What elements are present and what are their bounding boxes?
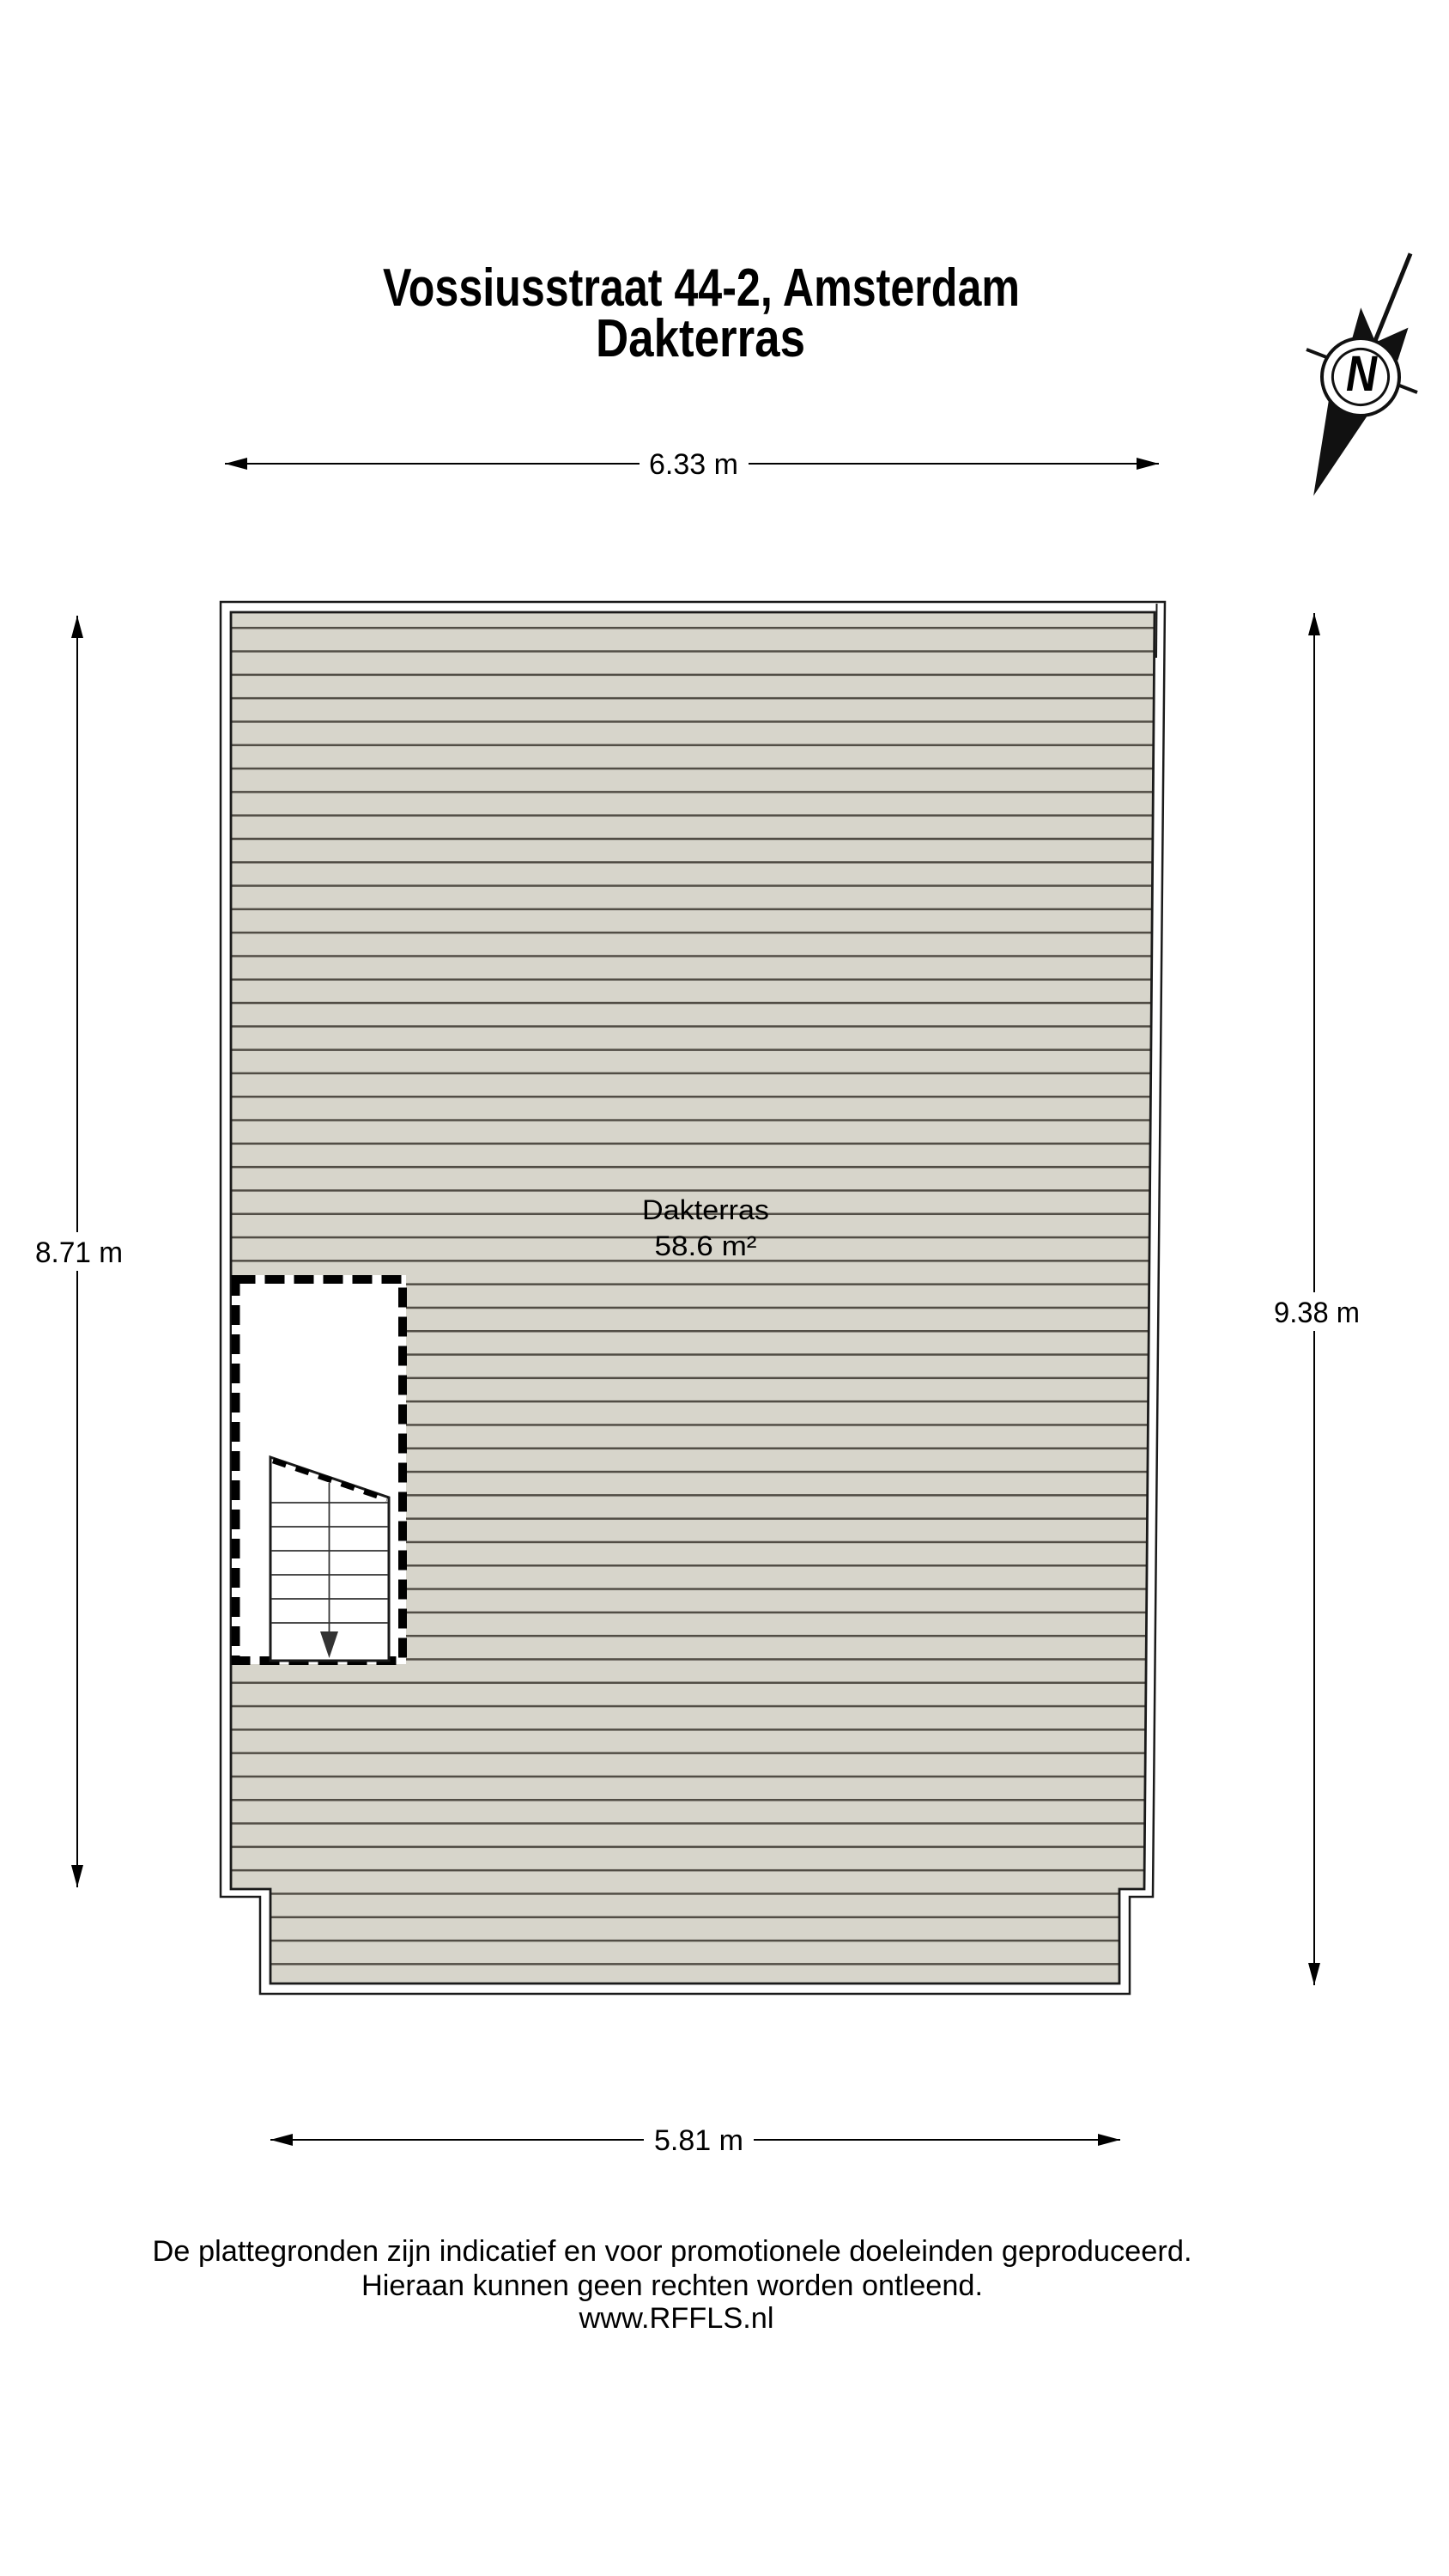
svg-text:6.33 m: 6.33 m: [649, 448, 738, 481]
svg-text:Hieraan kunnen geen rechten wo: Hieraan kunnen geen rechten worden ontle…: [361, 2269, 983, 2302]
svg-text:5.81 m: 5.81 m: [654, 2124, 743, 2157]
svg-text:8.71 m: 8.71 m: [35, 1236, 123, 1269]
svg-text:58.6 m²: 58.6 m²: [655, 1230, 757, 1261]
svg-text:9.38 m: 9.38 m: [1274, 1297, 1360, 1329]
svg-text:www.RFFLS.nl: www.RFFLS.nl: [578, 2302, 773, 2335]
svg-text:N: N: [1346, 346, 1378, 402]
svg-text:De plattegronden zijn indicati: De plattegronden zijn indicatief en voor…: [153, 2235, 1192, 2268]
svg-text:Dakterras: Dakterras: [642, 1194, 769, 1225]
svg-text:Dakterras: Dakterras: [596, 309, 805, 368]
